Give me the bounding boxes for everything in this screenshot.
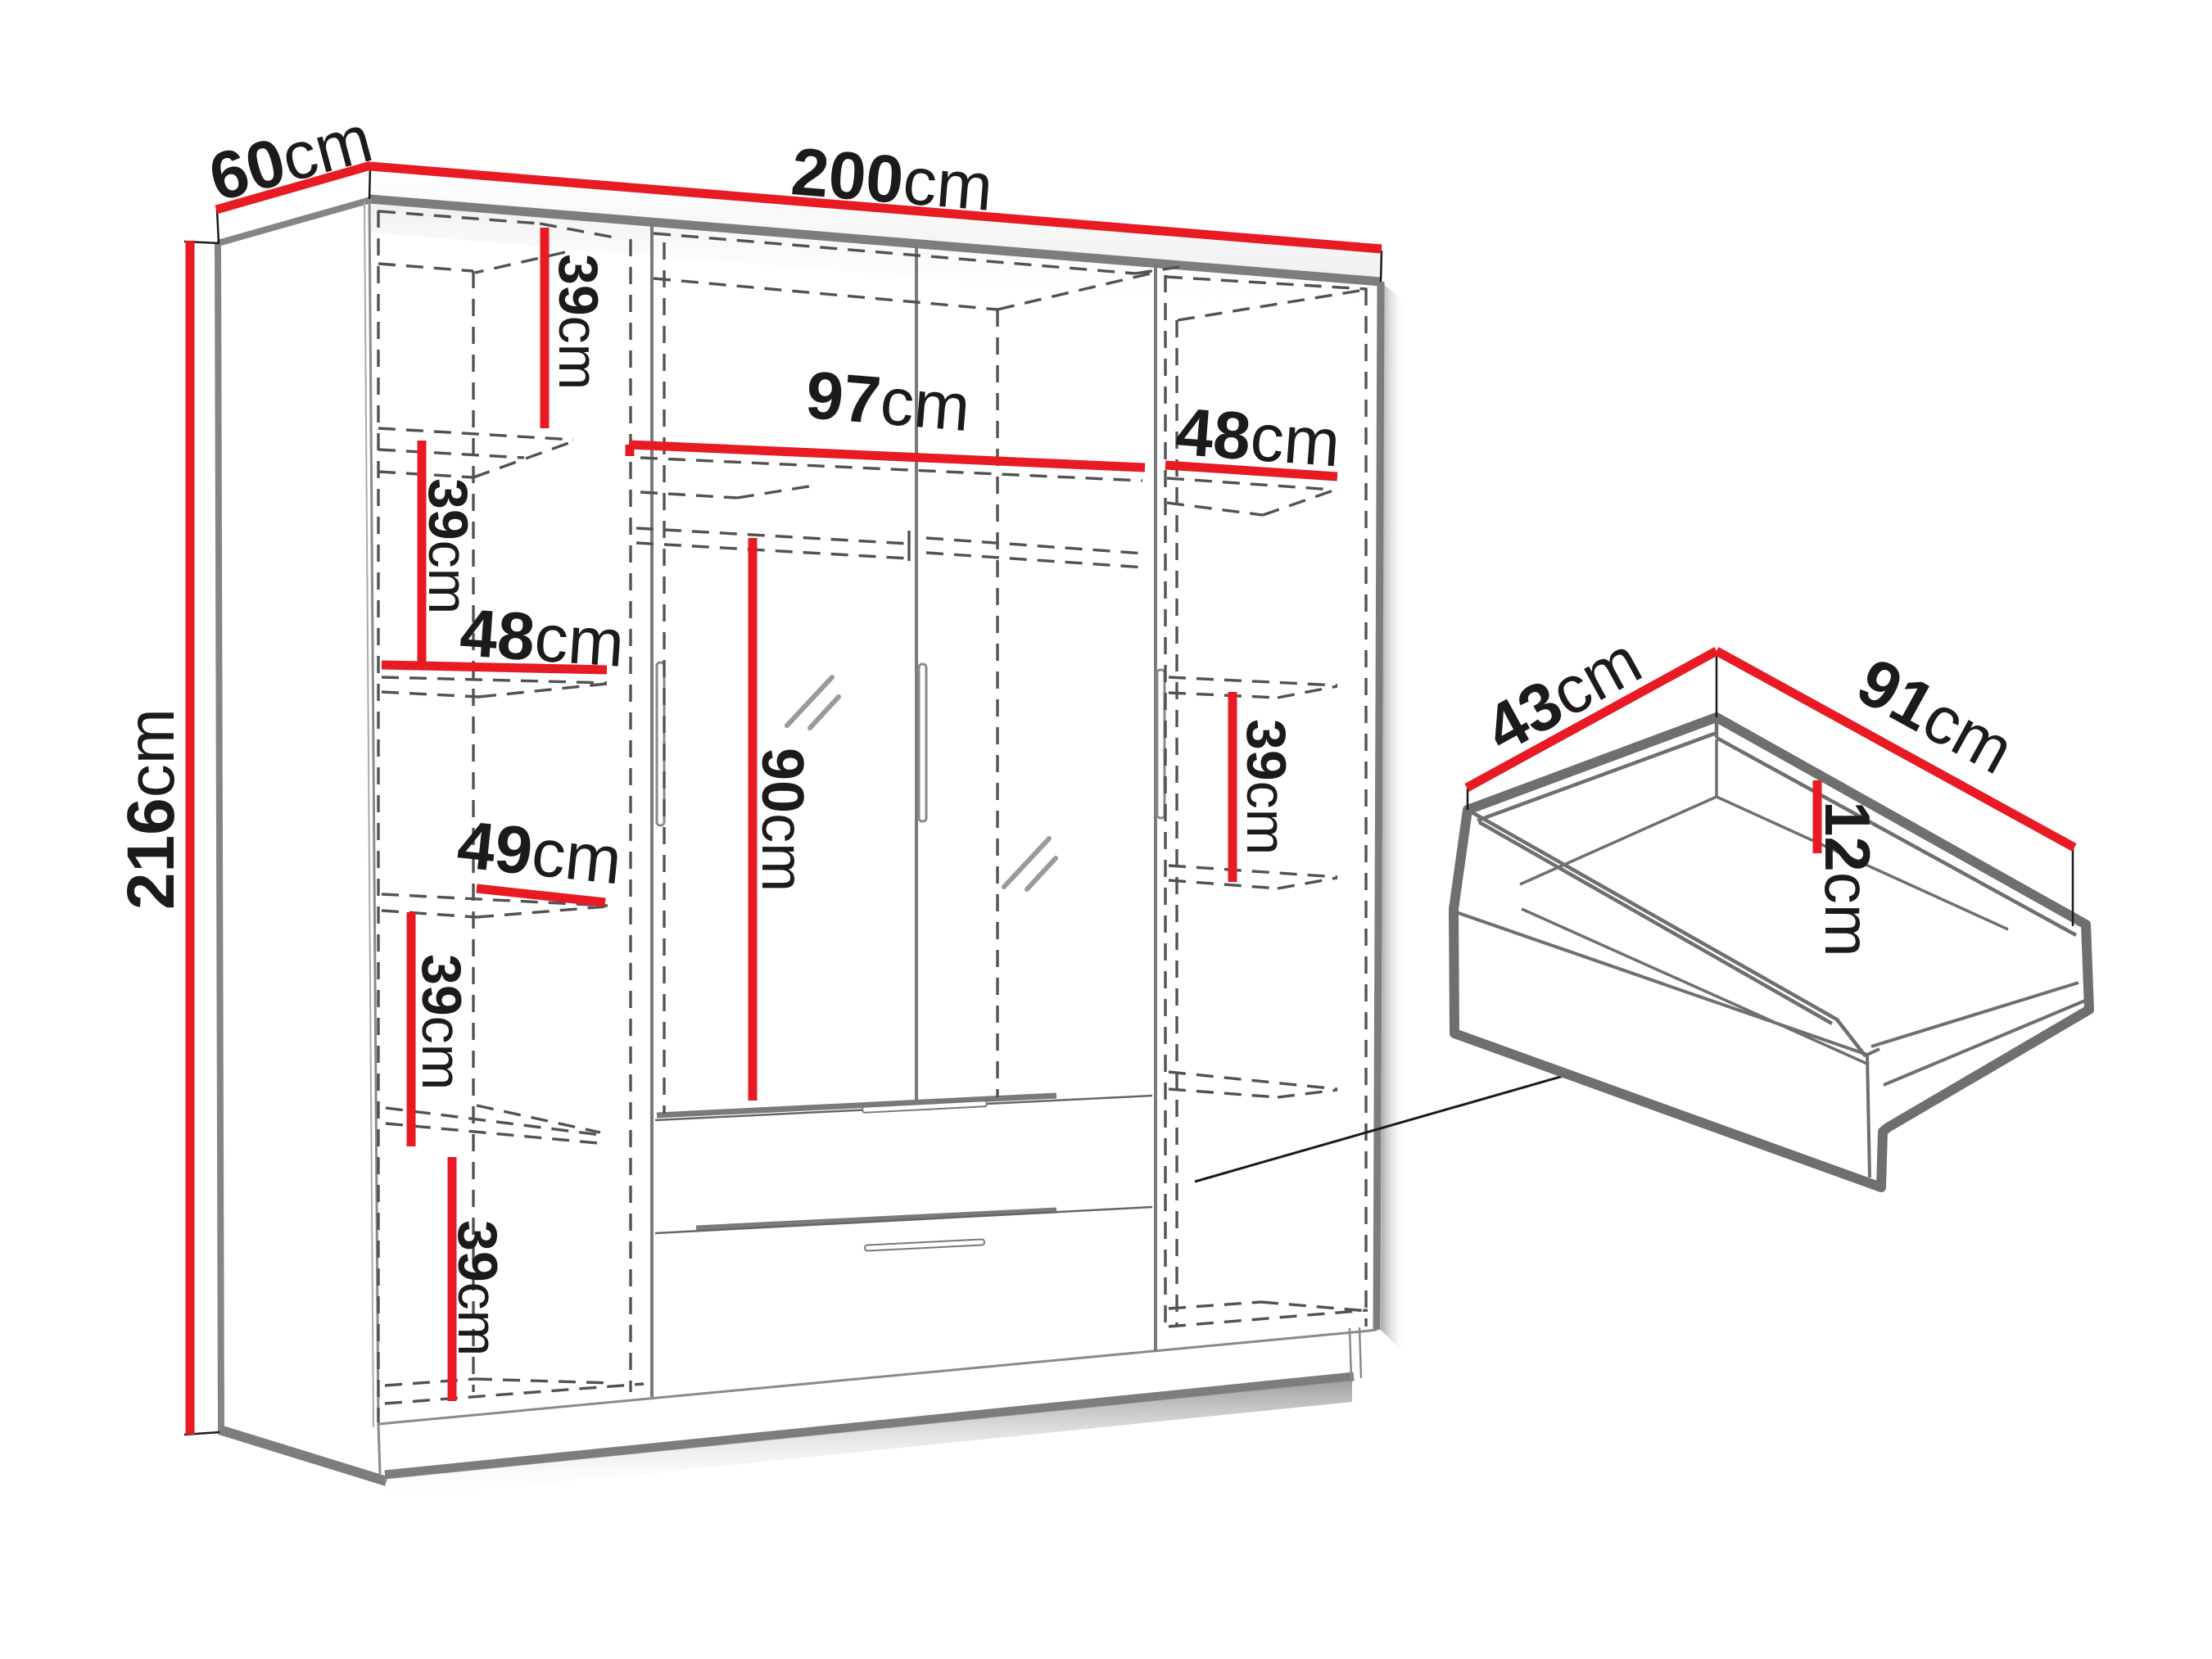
svg-text:39cm: 39cm <box>547 254 609 390</box>
svg-text:12cm: 12cm <box>1812 801 1884 957</box>
svg-text:216cm: 216cm <box>114 708 188 910</box>
svg-text:90cm: 90cm <box>749 748 815 892</box>
svg-text:39cm: 39cm <box>446 1220 509 1356</box>
svg-text:97cm: 97cm <box>803 358 973 445</box>
svg-text:39cm: 39cm <box>1235 719 1297 855</box>
svg-text:48cm: 48cm <box>458 595 627 681</box>
svg-text:39cm: 39cm <box>417 478 479 614</box>
svg-text:39cm: 39cm <box>410 954 473 1090</box>
svg-text:48cm: 48cm <box>1174 395 1343 481</box>
